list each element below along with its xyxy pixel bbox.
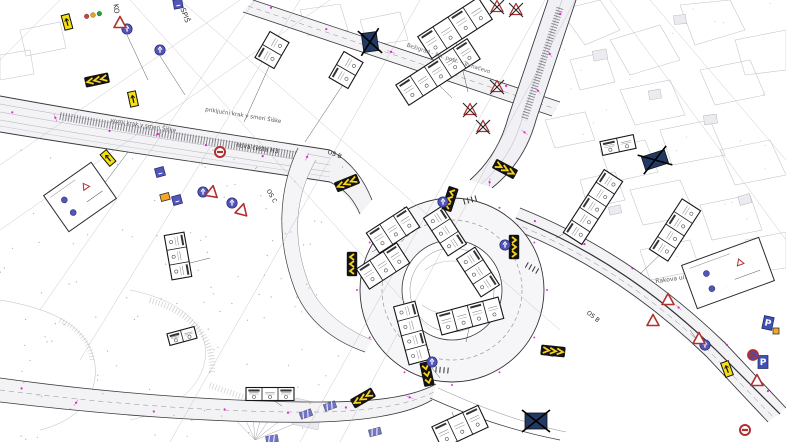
svg-text:P: P	[760, 358, 767, 368]
no-stopping-sign	[748, 350, 758, 360]
work-zone-panel	[160, 192, 171, 201]
street-label: OS C	[265, 188, 278, 204]
chevron-board	[509, 235, 519, 259]
mandatory-direction-sign	[427, 357, 437, 367]
parking-sign: P	[758, 356, 768, 369]
chevron-board	[541, 345, 566, 357]
sign-schedule-table	[600, 135, 636, 156]
supplementary-panel	[128, 91, 139, 107]
removed-sign	[522, 410, 550, 432]
info-sign	[171, 194, 182, 205]
work-zone-panel	[773, 328, 779, 334]
mandatory-direction-sign	[438, 197, 448, 207]
supplementary-panel	[61, 14, 73, 31]
removed-warning-sign	[463, 103, 477, 117]
street-label: priključni krak v smeri Šiške	[205, 106, 283, 125]
mandatory-direction-sign	[155, 45, 165, 55]
detail-callout-box	[44, 162, 117, 231]
removed-warning-sign	[509, 3, 523, 17]
sign-schedule-table	[329, 52, 363, 89]
detail-callout-box	[682, 237, 775, 308]
sign-schedule-table	[167, 327, 197, 346]
parking-sign: P	[762, 316, 774, 331]
info-sign	[154, 166, 165, 177]
supplementary-panel	[100, 150, 116, 167]
traffic-plan-canvas: PP priključni krak v smeri Šiškevozni kr…	[0, 0, 786, 442]
no-entry-sign	[215, 147, 225, 157]
mandatory-direction-sign	[500, 240, 510, 250]
no-entry-sign	[740, 425, 750, 435]
sign-schedule-table	[255, 32, 289, 69]
sign-schedule-table	[649, 199, 700, 261]
street-label: OS B	[585, 310, 601, 324]
removed-warning-sign	[476, 120, 490, 134]
warning-triangle-sign	[647, 315, 659, 326]
sign-schedule-table	[164, 232, 192, 280]
chevron-board	[84, 73, 110, 88]
chevron-board	[347, 252, 357, 276]
warning-triangle-sign	[114, 17, 126, 28]
mandatory-direction-sign	[227, 198, 237, 208]
street-label: KO	[111, 3, 120, 14]
road-marking-symbol	[368, 427, 381, 437]
street-label: Rakova ul.	[655, 274, 687, 285]
sign-schedule-table	[246, 388, 294, 401]
traffic-light	[84, 11, 102, 19]
removed-warning-sign	[490, 0, 504, 14]
